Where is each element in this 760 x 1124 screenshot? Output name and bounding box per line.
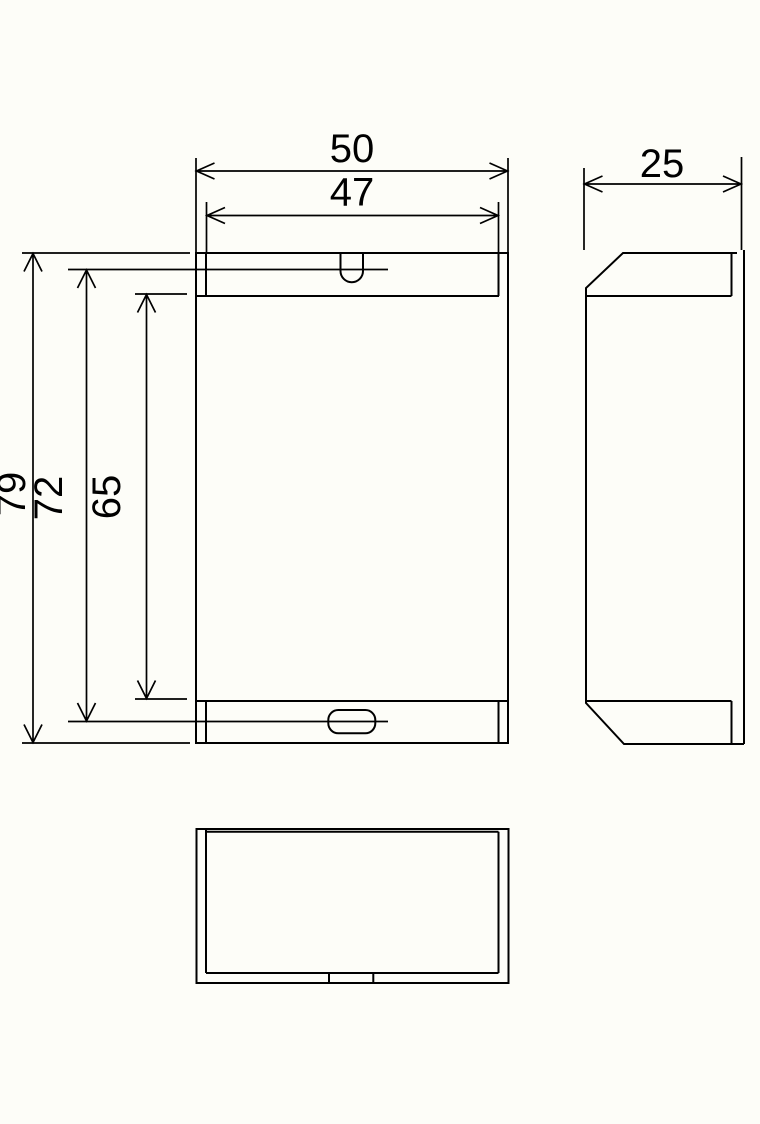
- dim-outer-width-label: 50: [330, 127, 375, 171]
- dim-mid-height-label: 72: [27, 476, 71, 521]
- dim-depth-label: 25: [640, 142, 685, 186]
- drawing-canvas: 50 47 25 79 72 65: [0, 0, 760, 1124]
- technical-drawing: 50 47 25 79 72 65: [0, 0, 760, 1124]
- dim-inner-width-label: 47: [330, 171, 375, 215]
- dim-inner-height-label: 65: [85, 475, 129, 520]
